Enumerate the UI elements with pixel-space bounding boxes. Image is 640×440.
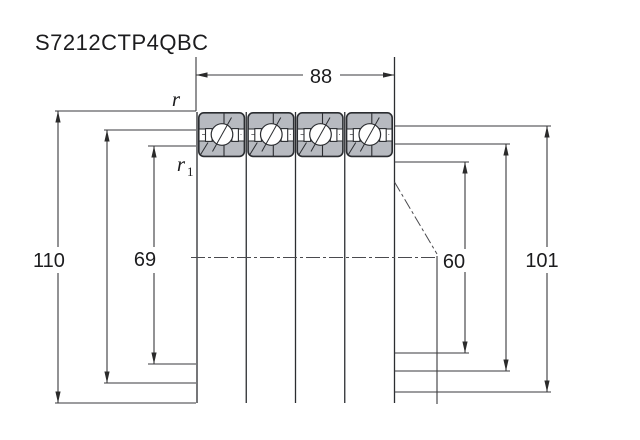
dimension-inner-shoulder-label: 69 bbox=[134, 249, 156, 271]
bearing-technical-drawing: 88 110 69 60 bbox=[0, 0, 640, 440]
bearing-block bbox=[197, 57, 395, 403]
bearing-unit-top-2 bbox=[248, 113, 294, 157]
chamfer-inner-subscript: 1 bbox=[187, 164, 194, 179]
part-number-title: S7212CTP4QBC bbox=[35, 30, 209, 55]
chamfer-inner-label: r bbox=[177, 152, 186, 176]
bearing-unit-top-4 bbox=[347, 113, 393, 157]
dimension-width bbox=[196, 57, 395, 111]
bearing-unit-top-1 bbox=[199, 113, 245, 157]
dimension-outer-shoulder-label: 101 bbox=[525, 250, 558, 272]
dimension-outer-diameter-label: 110 bbox=[33, 250, 65, 272]
dimension-outer-diameter bbox=[55, 111, 196, 403]
dimension-width-label: 88 bbox=[310, 66, 332, 88]
bearing-unit-top-3 bbox=[297, 113, 343, 157]
chamfer-outer-label: r bbox=[172, 87, 181, 111]
dimension-bore-label: 60 bbox=[443, 251, 465, 273]
bearing-drawing-page: 88 110 69 60 bbox=[0, 0, 640, 440]
